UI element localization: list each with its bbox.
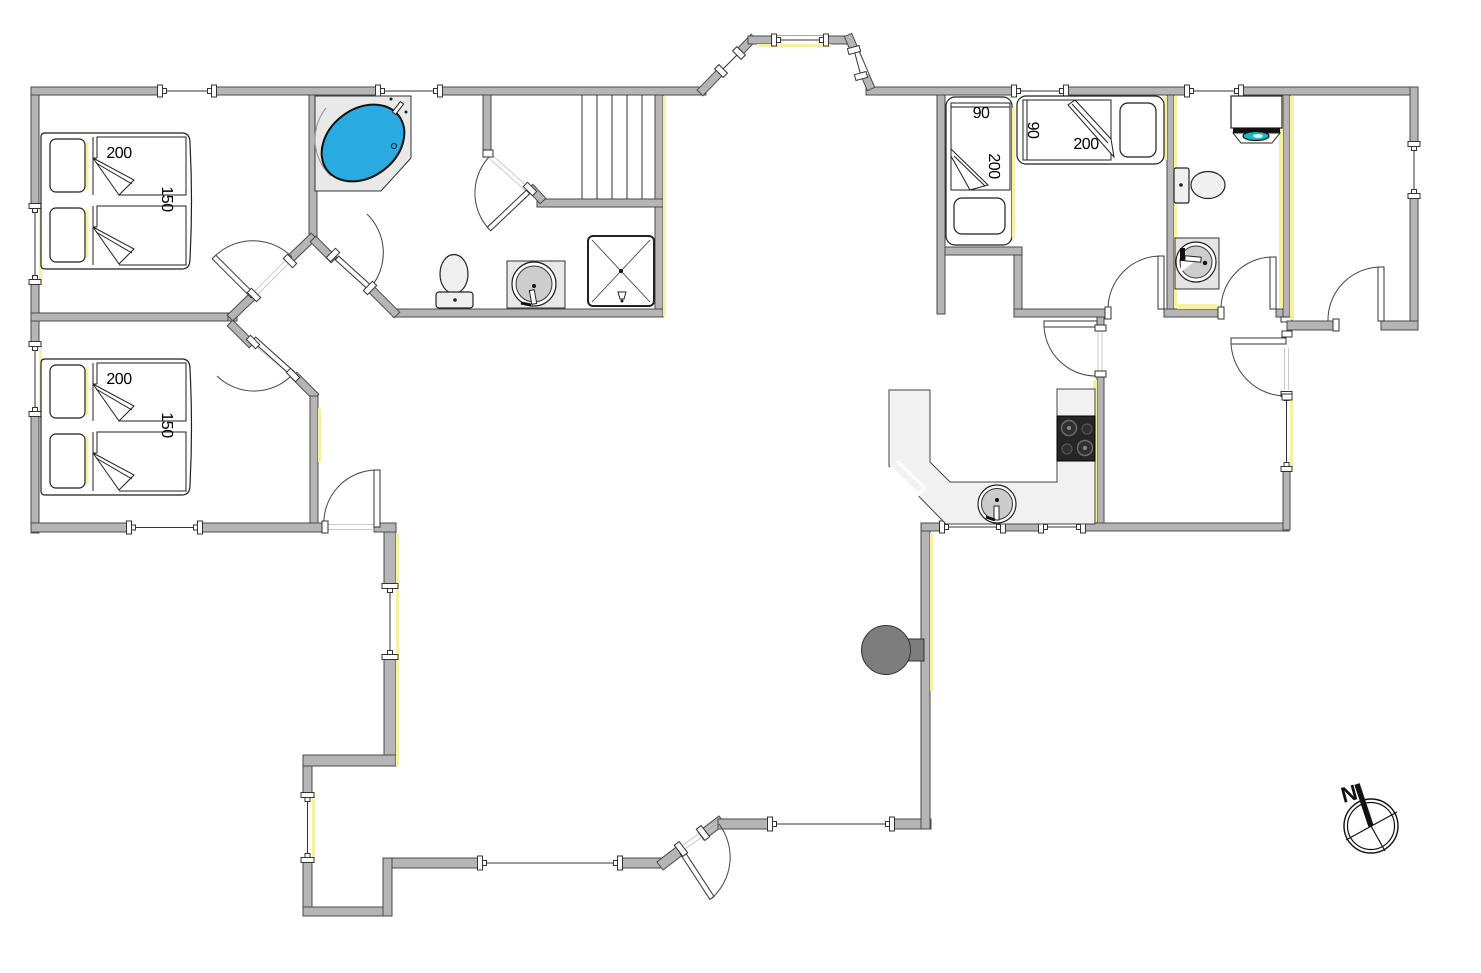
svg-text:150: 150: [158, 186, 175, 212]
svg-text:200: 200: [1073, 136, 1099, 153]
svg-text:200: 200: [106, 371, 132, 388]
svg-text:200: 200: [106, 145, 132, 162]
svg-text:90: 90: [973, 105, 990, 122]
svg-text:90: 90: [1024, 122, 1041, 139]
svg-text:150: 150: [158, 412, 175, 438]
svg-text:200: 200: [985, 153, 1002, 179]
